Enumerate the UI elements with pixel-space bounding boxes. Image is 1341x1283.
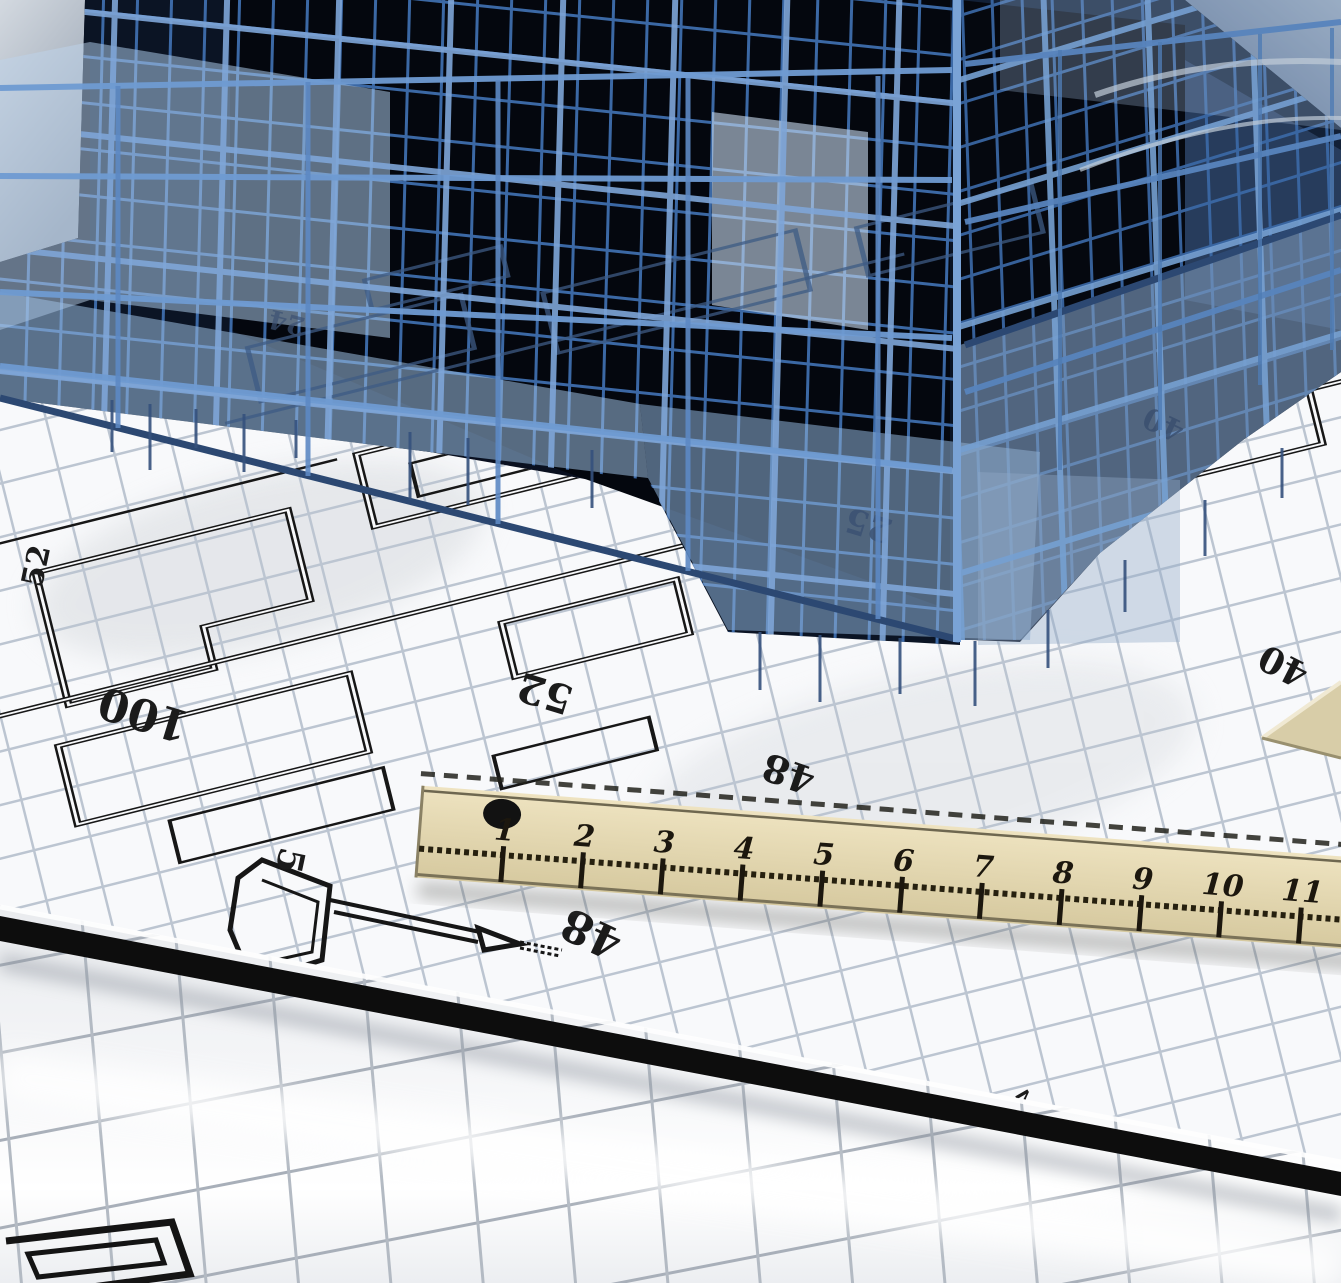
- ruler-number: 2: [572, 818, 596, 855]
- blueprint-scene-svg: 52 100 52 48 40 5 48 2: [0, 0, 1341, 1283]
- ruler-number: 8: [1050, 855, 1075, 892]
- ruler-number: 5: [812, 837, 835, 873]
- ruler-number: 10: [1201, 867, 1245, 905]
- blueprint-photo: 52 100 52 48 40 5 48 2: [0, 0, 1341, 1283]
- ruler-number: 1: [493, 812, 516, 848]
- ruler-number: 9: [1131, 862, 1155, 899]
- ruler-number: 6: [892, 843, 916, 880]
- ruler-number: 7: [972, 849, 996, 886]
- ruler-number: 4: [732, 831, 755, 867]
- ruler-number: 3: [653, 825, 676, 861]
- ruler-number: 11: [1280, 873, 1324, 911]
